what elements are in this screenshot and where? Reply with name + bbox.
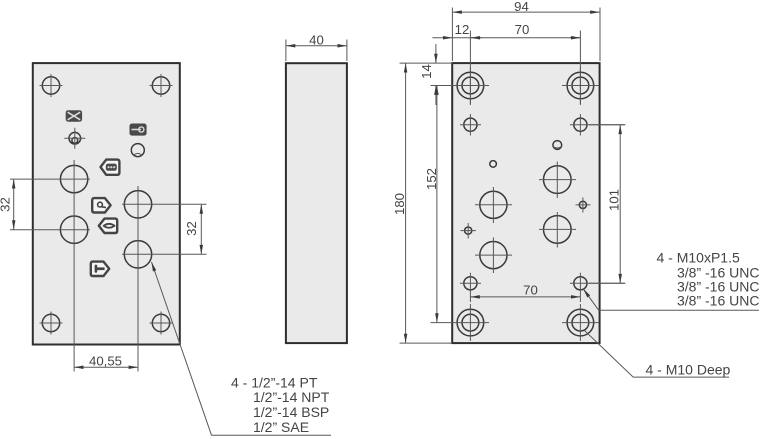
svg-text:40,55: 40,55	[89, 354, 122, 369]
svg-text:1/2”-14 NPT: 1/2”-14 NPT	[253, 389, 330, 405]
svg-text:101: 101	[607, 189, 622, 211]
svg-text:1/2”-14 BSP: 1/2”-14 BSP	[253, 404, 329, 420]
svg-text:180: 180	[392, 193, 407, 215]
svg-text:12: 12	[455, 22, 470, 37]
svg-text:152: 152	[424, 168, 439, 190]
svg-text:3/8” -16 UNC: 3/8” -16 UNC	[677, 293, 759, 309]
svg-text:70: 70	[523, 283, 538, 298]
svg-text:4 - 1/2”-14 PT: 4 - 1/2”-14 PT	[231, 374, 318, 390]
svg-text:32: 32	[0, 197, 13, 212]
svg-text:14: 14	[419, 64, 434, 79]
svg-text:70: 70	[515, 22, 530, 37]
svg-text:40: 40	[309, 33, 324, 48]
svg-text:1/2” SAE: 1/2” SAE	[253, 419, 309, 435]
svg-text:94: 94	[514, 0, 529, 14]
svg-text:32: 32	[184, 221, 199, 236]
svg-text:4 - M10xP1.5: 4 - M10xP1.5	[657, 249, 740, 265]
svg-text:4 - M10 Deep: 4 - M10 Deep	[646, 361, 731, 377]
